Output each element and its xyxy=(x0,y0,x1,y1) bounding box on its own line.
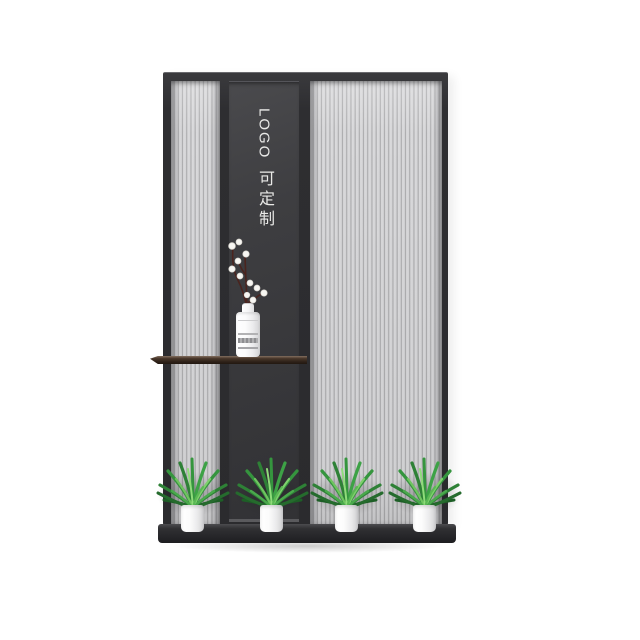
plant-foliage-1 xyxy=(148,453,238,511)
flower-vase xyxy=(236,312,260,357)
vase-label-band xyxy=(238,338,258,343)
plant-pot-4 xyxy=(413,505,436,532)
plant-foliage-4 xyxy=(380,453,470,511)
display-shelf xyxy=(150,356,307,364)
customizable-text: 可定制 xyxy=(252,170,276,230)
cotton-blossoms xyxy=(229,239,268,303)
vase-detail-line xyxy=(238,333,258,335)
plant-pot-3 xyxy=(335,505,358,532)
plant-pot-2 xyxy=(260,505,283,532)
vase-detail-line xyxy=(238,320,258,321)
plant-pot-1 xyxy=(181,505,204,532)
vase-detail-line xyxy=(238,347,258,349)
cotton-branch xyxy=(220,234,276,314)
logo-text: LOGO xyxy=(256,108,273,159)
plant-foliage-3 xyxy=(302,453,392,511)
product-photo: LOGO 可定制 xyxy=(0,0,640,640)
